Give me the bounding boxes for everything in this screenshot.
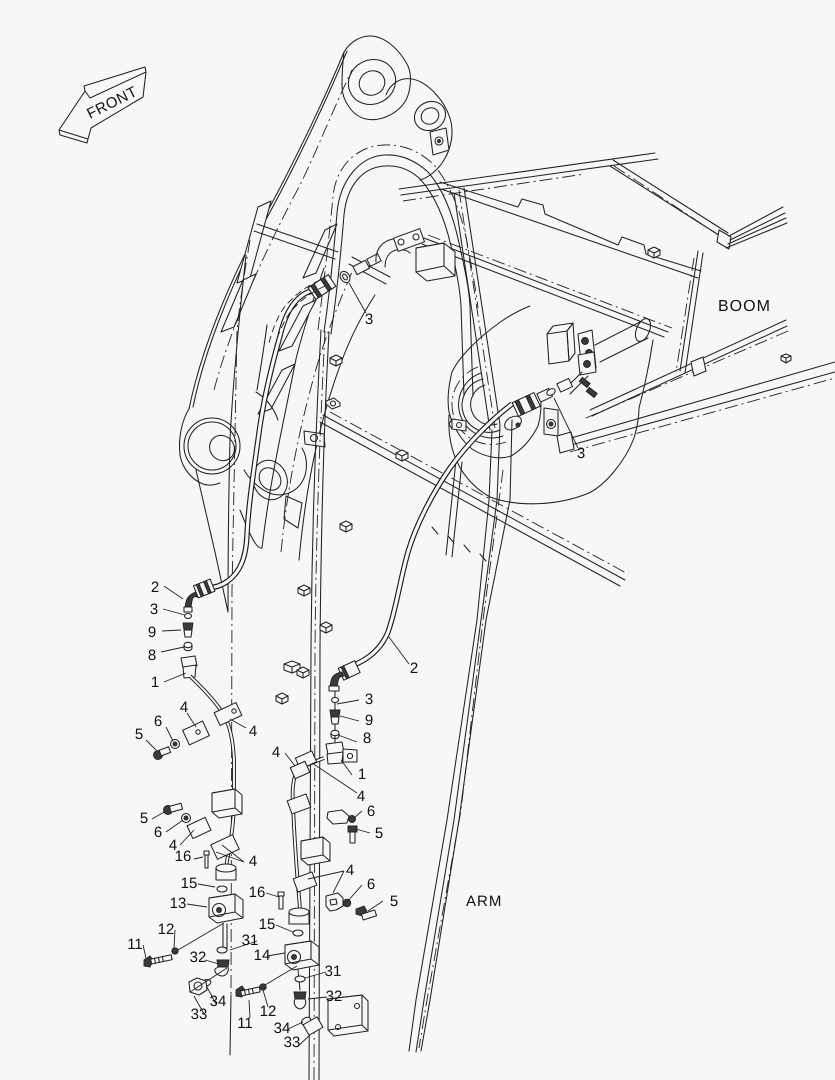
svg-text:6: 6 [154,824,162,841]
svg-text:4: 4 [249,723,257,740]
svg-text:4: 4 [272,744,280,761]
svg-text:4: 4 [249,853,257,870]
svg-text:8: 8 [363,730,371,747]
svg-text:2: 2 [151,579,159,596]
svg-text:3: 3 [365,691,373,708]
svg-text:14: 14 [254,947,271,964]
svg-text:33: 33 [284,1034,301,1051]
svg-text:9: 9 [148,624,156,641]
svg-text:5: 5 [135,726,143,743]
svg-text:ARM: ARM [466,893,502,910]
svg-text:15: 15 [181,875,198,892]
svg-text:31: 31 [325,963,342,980]
svg-text:3: 3 [150,601,158,618]
svg-text:5: 5 [140,810,148,827]
svg-text:12: 12 [158,921,175,938]
svg-text:34: 34 [210,993,227,1010]
svg-text:11: 11 [237,1015,253,1032]
svg-text:2: 2 [410,660,418,677]
svg-text:5: 5 [390,893,398,910]
svg-text:6: 6 [367,876,375,893]
svg-text:15: 15 [259,916,276,933]
svg-text:16: 16 [175,848,192,865]
svg-text:32: 32 [326,988,343,1005]
svg-text:BOOM: BOOM [718,298,771,315]
svg-text:1: 1 [358,766,366,783]
svg-text:16: 16 [249,884,266,901]
svg-text:3: 3 [577,445,585,462]
svg-text:5: 5 [375,825,383,842]
svg-text:8: 8 [148,647,156,664]
svg-text:3: 3 [365,311,373,328]
svg-text:4: 4 [346,862,354,879]
svg-text:4: 4 [180,699,188,716]
svg-text:32: 32 [190,949,207,966]
svg-text:6: 6 [154,713,162,730]
svg-text:1: 1 [151,674,159,691]
svg-text:33: 33 [191,1006,208,1023]
svg-text:6: 6 [367,803,375,820]
svg-text:9: 9 [365,712,373,729]
svg-text:13: 13 [170,895,187,912]
svg-text:12: 12 [260,1003,277,1020]
svg-text:4: 4 [357,788,365,805]
svg-text:11: 11 [127,936,143,953]
